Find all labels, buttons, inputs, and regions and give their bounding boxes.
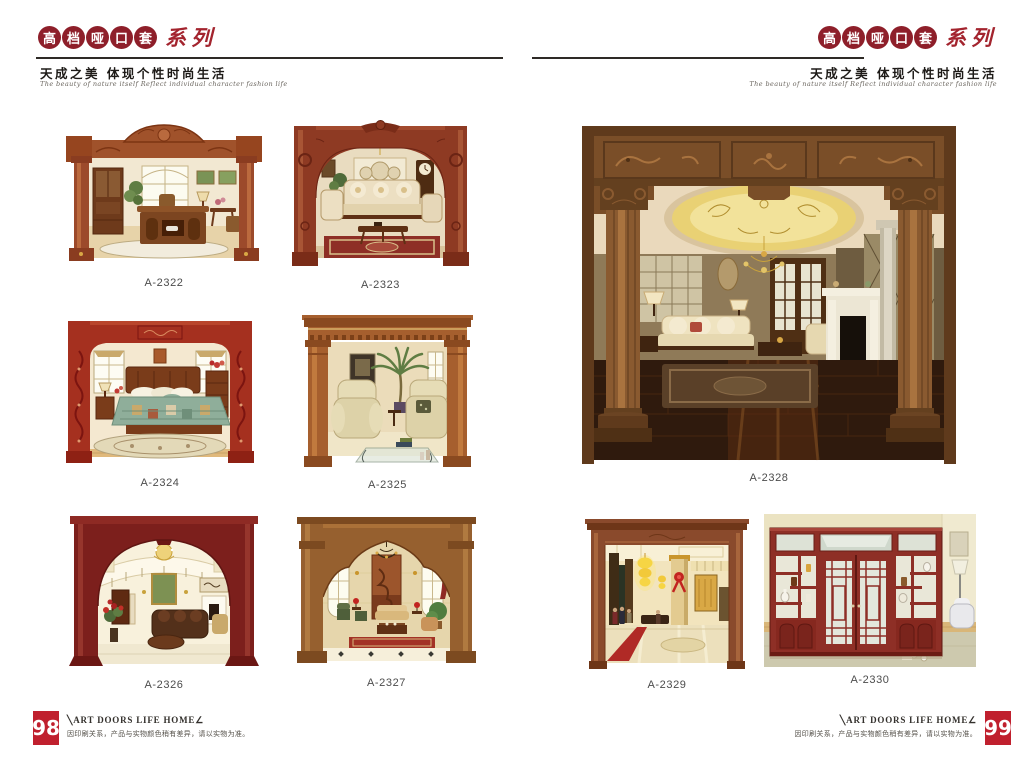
header-rule — [532, 57, 864, 59]
product-code: A-2326 — [66, 679, 262, 691]
logo-char-circle: 口 — [890, 26, 913, 49]
brand-logo: 高 档 哑 口 套 系列 — [38, 24, 217, 50]
logo-char-circle: 档 — [62, 26, 85, 49]
product-photo-a2324 — [62, 313, 258, 470]
logo-suffix: 系列 — [165, 22, 217, 52]
product-figure-a2324: A-2324 — [62, 313, 258, 470]
product-code: A-2328 — [578, 472, 960, 484]
product-code: A-2323 — [288, 279, 473, 291]
product-figure-a2323: A-2323 — [288, 118, 473, 272]
product-photo-a2329 — [583, 517, 751, 672]
logo-char-circle: 高 — [818, 26, 841, 49]
page-number-left: 98 — [33, 711, 59, 745]
logo-char-circle: 档 — [842, 26, 865, 49]
product-code: A-2322 — [60, 277, 268, 289]
logo-char-circle: 套 — [134, 26, 157, 49]
product-photo-a2325 — [300, 310, 475, 472]
product-photo-a2327 — [295, 511, 478, 670]
page-number-right: 99 — [985, 711, 1011, 745]
logo-char-circle: 口 — [110, 26, 133, 49]
product-code: A-2325 — [300, 479, 475, 491]
product-code: A-2324 — [62, 477, 258, 489]
product-photo-a2330 — [764, 514, 976, 667]
logo-suffix: 系列 — [945, 22, 997, 52]
header-rule — [36, 57, 503, 59]
product-figure-a2326: A-2326 — [66, 512, 262, 672]
product-photo-a2326 — [66, 512, 262, 672]
product-photo-a2323 — [288, 118, 473, 272]
product-figure-a2327: A-2327 — [295, 511, 478, 670]
product-code: A-2329 — [583, 679, 751, 691]
product-photo-a2322 — [60, 122, 268, 270]
product-code: A-2327 — [295, 677, 478, 689]
header-right: 高 档 哑 口 套 系列 天成之美 体现个性时尚生活 The beauty of… — [532, 24, 999, 92]
footer-disclaimer: 因印刷关系，产品与实物颜色稍有差异，请以实物为准。 — [795, 729, 978, 739]
footer-disclaimer: 因印刷关系，产品与实物颜色稍有差异，请以实物为准。 — [67, 729, 250, 739]
product-figure-a2330: A-2330 — [764, 514, 976, 667]
brand-logo: 高 档 哑 口 套 系列 — [818, 24, 997, 50]
footer-brand: ╲ART DOORS LIFE HOME∠ — [67, 715, 250, 726]
product-figure-a2322: A-2322 — [60, 122, 268, 270]
footer-brand: ╲ART DOORS LIFE HOME∠ — [795, 715, 978, 726]
product-figure-a2325: A-2325 — [300, 310, 475, 472]
product-figure-a2328: A-2328 — [578, 124, 960, 466]
footer-right: ╲ART DOORS LIFE HOME∠ 因印刷关系，产品与实物颜色稍有差异，… — [795, 711, 1012, 745]
logo-char-circle: 高 — [38, 26, 61, 49]
logo-char-circle: 哑 — [866, 26, 889, 49]
header-tagline-en: The beauty of nature itself Reflect indi… — [40, 80, 288, 88]
product-code: A-2330 — [764, 674, 976, 686]
product-figure-a2329: A-2329 — [583, 517, 751, 672]
logo-char-circle: 套 — [914, 26, 937, 49]
footer-left: 98 ╲ART DOORS LIFE HOME∠ 因印刷关系，产品与实物颜色稍有… — [33, 711, 250, 745]
product-photo-a2328 — [578, 124, 960, 466]
logo-char-circle: 哑 — [86, 26, 109, 49]
header-left: 高 档 哑 口 套 系列 天成之美 体现个性时尚生活 The beauty of… — [36, 24, 503, 92]
header-tagline-en: The beauty of nature itself Reflect indi… — [749, 80, 997, 88]
